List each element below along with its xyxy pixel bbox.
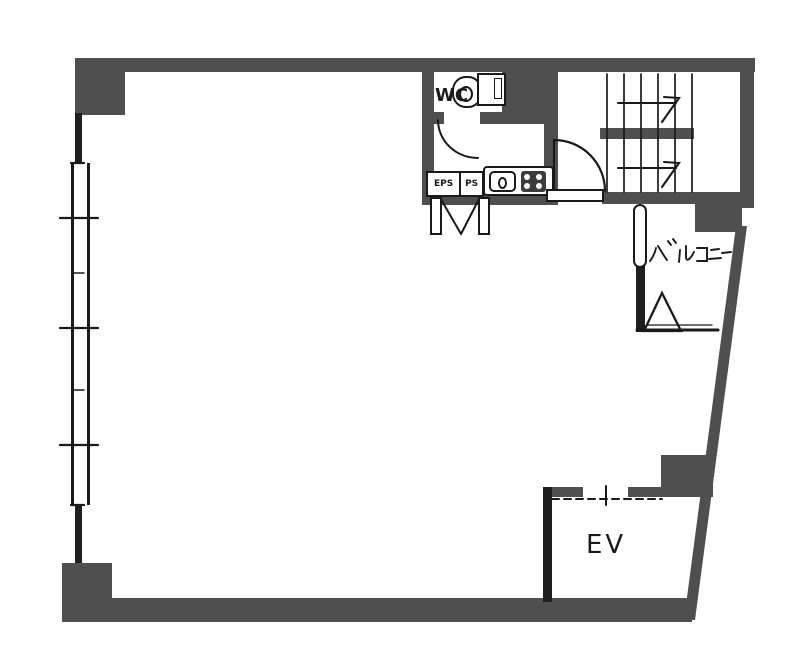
balcony-label: バルコニー [650,243,730,257]
main-room [82,72,542,598]
wc-label: WC [435,87,468,105]
column-balcony-top-right [695,198,742,232]
ps-label: PS [465,179,478,189]
wall-bottom [62,598,692,622]
wall-left-upper [75,113,82,165]
double-door-jamb-left [430,197,442,235]
wall-top [75,58,755,72]
wall-balcony-left [636,266,645,332]
wall-ev-stub-right [628,487,667,497]
stairwell [558,72,740,192]
wall-left-lower [75,503,82,567]
column-ev-top-right [661,455,713,497]
pipe-shaft-box: EPS PS [426,171,484,197]
entrance-threshold [546,189,604,202]
window-left [71,163,90,505]
eps-shaft: EPS [428,173,461,195]
stove-icon [521,171,546,192]
wall-ev-left [543,487,552,602]
balcony-window [633,204,647,268]
eps-label: EPS [434,179,453,189]
ev-label: EV [586,532,626,558]
ps-shaft: PS [461,173,482,195]
floor-plan: EPS PS WC EV バルコニー [0,0,787,656]
double-door-jamb-right [478,197,490,235]
sink-basin [498,177,507,189]
wall-stair-right [740,62,754,208]
